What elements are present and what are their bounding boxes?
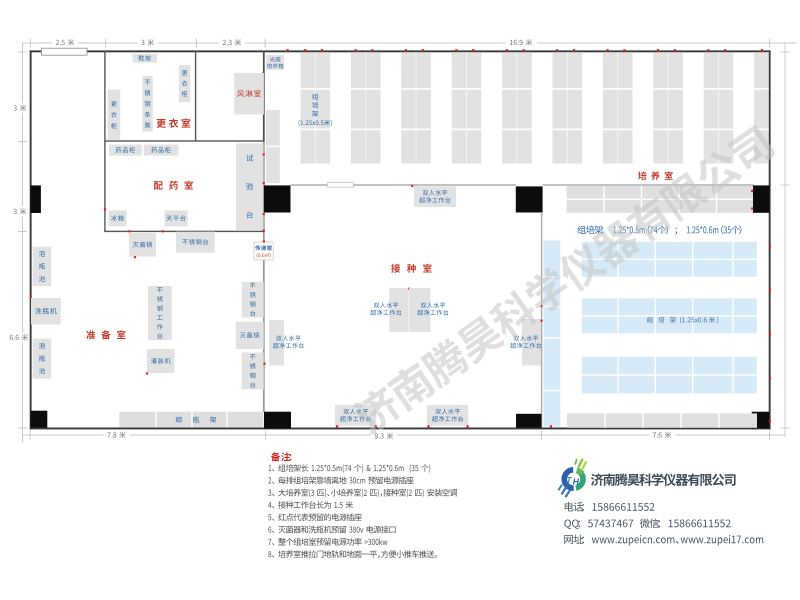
svg-text:T: T	[566, 475, 572, 485]
svg-text:H: H	[573, 477, 580, 487]
